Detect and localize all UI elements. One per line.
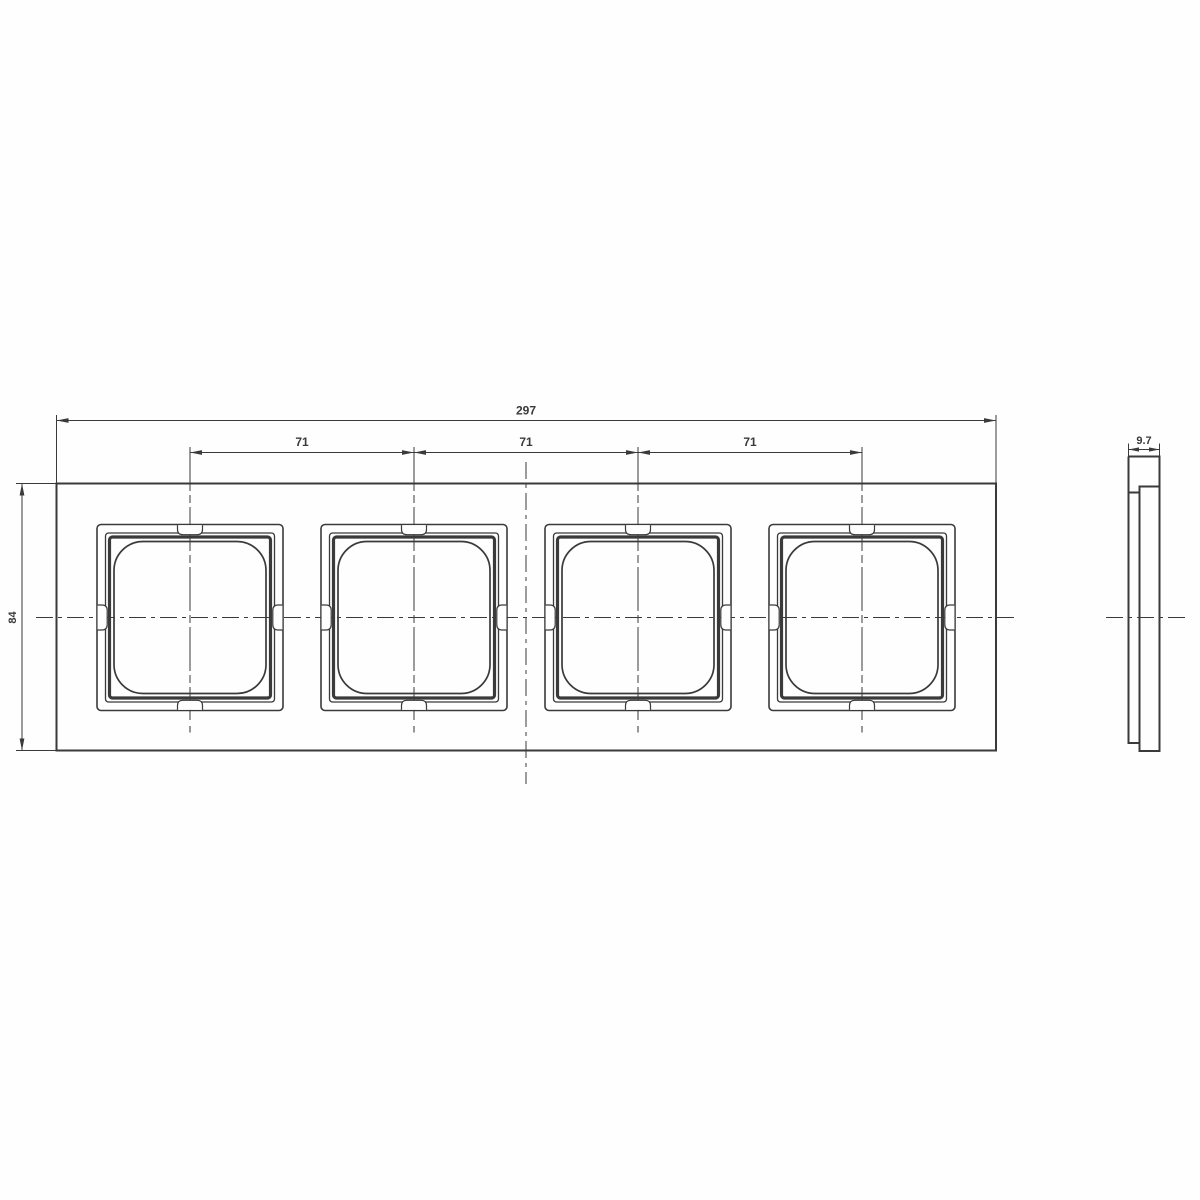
front-view [36, 447, 1016, 784]
side-view [1106, 457, 1186, 752]
dim-label-pitch-1: 71 [295, 435, 309, 449]
dim-depth: 9.7 [1129, 435, 1160, 457]
dim-label-pitch-2: 71 [519, 435, 533, 449]
dim-pitches: 71 71 71 [190, 435, 862, 455]
dim-label-depth: 9.7 [1136, 435, 1151, 447]
drawing-page: 297 71 71 71 84 [0, 0, 1200, 1200]
dim-label-pitch-3: 71 [743, 435, 757, 449]
dim-label-total-width: 297 [516, 404, 536, 418]
technical-drawing-canvas: 297 71 71 71 84 [0, 0, 1200, 1200]
side-profile [1129, 457, 1160, 752]
dim-label-height: 84 [7, 611, 19, 624]
